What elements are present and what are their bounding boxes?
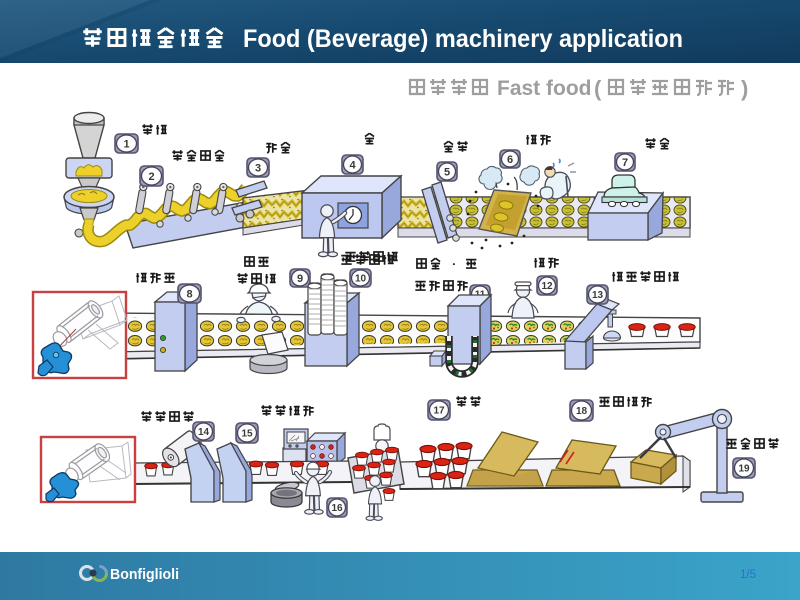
svg-text:5: 5	[444, 166, 450, 178]
svg-text:17: 17	[433, 406, 445, 417]
svg-text:Bonfiglioli: Bonfiglioli	[110, 566, 179, 583]
svg-text:3: 3	[255, 162, 261, 174]
svg-text:Fast food: Fast food	[497, 77, 592, 100]
svg-text:14: 14	[198, 427, 210, 438]
svg-text:7: 7	[622, 157, 628, 169]
svg-text:1: 1	[123, 138, 129, 150]
svg-text:12: 12	[541, 281, 553, 292]
svg-text:10: 10	[355, 274, 367, 285]
svg-text:2: 2	[148, 171, 154, 183]
svg-text:13: 13	[592, 290, 604, 301]
svg-text:9: 9	[297, 273, 303, 285]
svg-text:15: 15	[241, 429, 253, 440]
svg-text:6: 6	[507, 154, 513, 166]
svg-text:Food (Beverage) machinery appl: Food (Beverage) machinery application	[243, 25, 683, 53]
svg-text:16: 16	[331, 503, 343, 514]
svg-text:8: 8	[186, 288, 192, 300]
svg-text:19: 19	[738, 464, 750, 475]
svg-text:1/5: 1/5	[740, 569, 756, 581]
svg-text:): )	[741, 76, 748, 101]
svg-text:4: 4	[349, 159, 356, 171]
svg-text:18: 18	[576, 406, 588, 417]
svg-text:(: (	[594, 76, 602, 101]
